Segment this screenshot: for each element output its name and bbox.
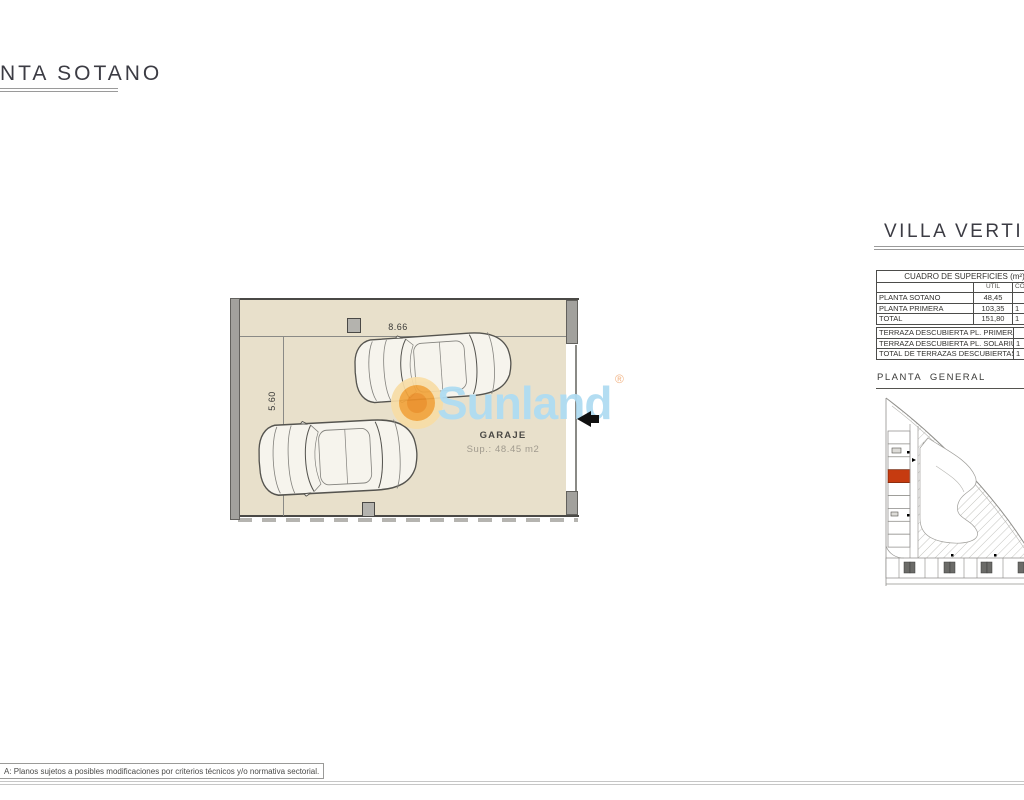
wall-section-hatch bbox=[238, 518, 578, 522]
row-label: TERRAZA DESCUBIERTA PL. PRIMERA bbox=[877, 328, 1014, 339]
footer-rule bbox=[0, 781, 1024, 782]
surfaces-col-con: CON bbox=[1013, 283, 1024, 293]
column-bottom bbox=[362, 502, 375, 517]
entrance-arrow-icon bbox=[577, 411, 591, 427]
row-label: PLANTA PRIMERA bbox=[877, 303, 974, 314]
title-underline-2 bbox=[0, 91, 118, 92]
row-label: TERRAZA DESCUBIERTA PL. SOLARIUM bbox=[877, 338, 1014, 349]
villa-title: VILLA VERTICAL bbox=[884, 221, 1024, 243]
room-area: Sup.: 48.45 m2 bbox=[443, 444, 563, 455]
wall-left bbox=[230, 298, 240, 520]
row-util: 48,45 bbox=[974, 293, 1013, 304]
surfaces-col-empty bbox=[877, 283, 974, 293]
villa-title-underline bbox=[874, 246, 1024, 247]
dimension-width-label: 8.66 bbox=[368, 322, 428, 332]
room-name: GARAJE bbox=[443, 430, 563, 441]
villa-title-underline-2 bbox=[874, 249, 1024, 250]
row-util: 103,35 bbox=[974, 303, 1013, 314]
room-label: GARAJE Sup.: 48.45 m2 bbox=[443, 430, 563, 455]
highlighted-plot bbox=[888, 470, 910, 483]
column-top bbox=[347, 318, 361, 333]
row-value: 1 bbox=[1014, 338, 1024, 349]
row-label: TOTAL bbox=[877, 314, 974, 325]
row-value bbox=[1014, 328, 1024, 339]
page-title: NTA SOTANO bbox=[0, 62, 162, 86]
row-label: TOTAL DE TERRAZAS DESCUBIERTAS bbox=[877, 349, 1014, 360]
sunland-sun-icon bbox=[391, 377, 443, 429]
entrance-arrow-tail bbox=[591, 415, 599, 423]
surfaces-col-util: UTIL bbox=[974, 283, 1013, 293]
row-value: 1 bbox=[1014, 349, 1024, 360]
row-con: 1 bbox=[1013, 303, 1024, 314]
site-plan-title: PLANTA GENERAL bbox=[877, 372, 986, 383]
sun-mid-ring bbox=[399, 385, 435, 421]
table-row: PLANTA PRIMERA 103,35 1 bbox=[877, 303, 1024, 314]
site-plan-title-underline bbox=[876, 388, 1024, 389]
footer-rule-2 bbox=[0, 784, 1024, 785]
surfaces-table-header: CUADRO DE SUPERFICIES (m²) bbox=[877, 271, 1024, 283]
terraces-table: TERRAZA DESCUBIERTA PL. PRIMERA TERRAZA … bbox=[876, 327, 1024, 360]
title-underline bbox=[0, 88, 118, 89]
plan-sheet: NTA SOTANO 8.66 5.60 GARAJE Sup.: 48.45 … bbox=[0, 0, 1024, 800]
row-util: 151,80 bbox=[974, 314, 1013, 325]
sun-core bbox=[407, 393, 427, 413]
row-label: PLANTA SOTANO bbox=[877, 293, 974, 304]
table-row: TOTAL DE TERRAZAS DESCUBIERTAS 1 bbox=[877, 349, 1024, 360]
table-row: TERRAZA DESCUBIERTA PL. PRIMERA bbox=[877, 328, 1024, 339]
registered-mark: ® bbox=[615, 372, 624, 386]
surfaces-table: CUADRO DE SUPERFICIES (m²) UTIL CON PLAN… bbox=[876, 270, 1024, 325]
table-row: TOTAL 151,80 1 bbox=[877, 314, 1024, 325]
site-plan bbox=[876, 396, 1024, 596]
wall-top bbox=[230, 298, 579, 300]
car-top-view-lower bbox=[254, 415, 422, 499]
row-con bbox=[1013, 293, 1024, 304]
footer-note: A: Planos sujetos a posibles modificacio… bbox=[0, 763, 324, 779]
dimension-height-label: 5.60 bbox=[267, 381, 279, 421]
table-row: PLANTA SOTANO 48,45 bbox=[877, 293, 1024, 304]
wall-corner-top-right bbox=[566, 300, 578, 344]
row-con: 1 bbox=[1013, 314, 1024, 325]
table-row: TERRAZA DESCUBIERTA PL. SOLARIUM 1 bbox=[877, 338, 1024, 349]
wall-corner-bottom-right bbox=[566, 491, 578, 515]
